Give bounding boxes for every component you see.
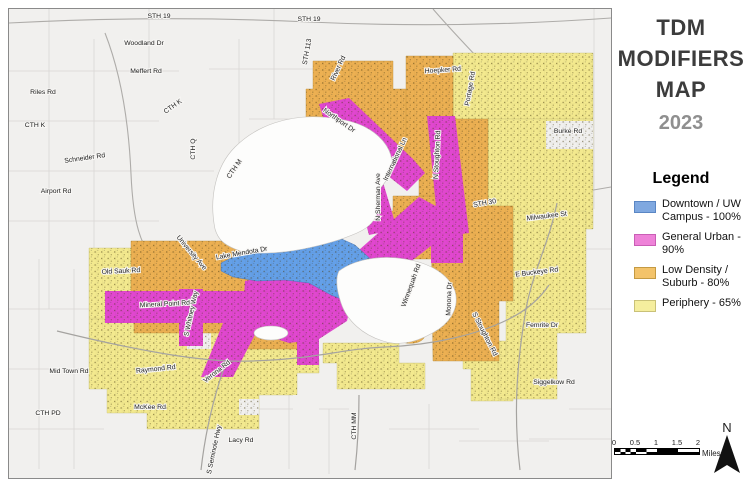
road-label: N Sherman Ave bbox=[375, 173, 382, 221]
legend: Downtown / UW Campus - 100%General Urban… bbox=[634, 198, 746, 319]
legend-item-label: Periphery - 65% bbox=[662, 297, 741, 310]
map-year: 2023 bbox=[612, 112, 750, 135]
road-label: Riles Rd bbox=[30, 89, 56, 96]
road-label: Siggelkow Rd bbox=[533, 379, 575, 386]
map-title: TDM MODIFIERS MAP bbox=[612, 12, 750, 105]
side-panel: TDM MODIFIERS MAP 2023 Legend Downtown /… bbox=[612, 0, 750, 485]
scale-ticks: 0 0.5 1 1.5 2 bbox=[614, 438, 724, 448]
legend-item: Downtown / UW Campus - 100% bbox=[634, 198, 746, 224]
legend-item-label: General Urban - 90% bbox=[662, 231, 746, 257]
legend-item-label: Low Density / Suburb - 80% bbox=[662, 264, 746, 290]
road-label: Meffert Rd bbox=[130, 68, 162, 75]
road-label: Monona Dr bbox=[445, 281, 453, 316]
road-label: CTH Q bbox=[190, 138, 197, 159]
scale-bar: 0 0.5 1 1.5 2 Miles bbox=[614, 438, 724, 464]
scale-tick: 1 bbox=[654, 438, 658, 447]
legend-swatch bbox=[634, 234, 656, 246]
road-label: Lacy Rd bbox=[229, 437, 254, 444]
legend-item: Periphery - 65% bbox=[634, 297, 746, 312]
road-label: Burke Rd bbox=[554, 128, 583, 135]
legend-heading: Legend bbox=[612, 170, 750, 188]
tdm-modifiers-map-page: STH 19STH 19Woodland DrMeffert RdRiles R… bbox=[0, 0, 750, 485]
road-label: Femrite Dr bbox=[526, 322, 559, 329]
road-label: Mid Town Rd bbox=[49, 368, 88, 375]
scale-tick: 1.5 bbox=[672, 438, 682, 447]
scale-bar-graphic bbox=[614, 448, 700, 455]
scale-tick: 0 bbox=[612, 438, 616, 447]
road-label: Airport Rd bbox=[41, 188, 72, 195]
map-frame: STH 19STH 19Woodland DrMeffert RdRiles R… bbox=[8, 8, 612, 479]
north-label: N bbox=[710, 420, 744, 435]
road-label: STH 19 bbox=[297, 16, 320, 23]
road-label: Woodland Dr bbox=[124, 40, 164, 47]
road-label: STH 19 bbox=[147, 13, 170, 20]
road-label: CTH MM bbox=[351, 412, 358, 440]
legend-item: Low Density / Suburb - 80% bbox=[634, 264, 746, 290]
road-label: McKee Rd bbox=[134, 404, 166, 411]
legend-item-label: Downtown / UW Campus - 100% bbox=[662, 198, 746, 224]
road-label: CTH PD bbox=[35, 410, 60, 417]
legend-item: General Urban - 90% bbox=[634, 231, 746, 257]
legend-swatch bbox=[634, 201, 656, 213]
road-label: CTH K bbox=[25, 122, 46, 129]
legend-swatch bbox=[634, 267, 656, 279]
legend-swatch bbox=[634, 300, 656, 312]
scale-tick: 2 bbox=[696, 438, 700, 447]
north-arrow-icon bbox=[712, 435, 742, 475]
north-arrow: N bbox=[710, 420, 744, 476]
scale-tick: 0.5 bbox=[630, 438, 640, 447]
lake-wingra bbox=[254, 326, 288, 340]
map-canvas: STH 19STH 19Woodland DrMeffert RdRiles R… bbox=[9, 9, 611, 478]
